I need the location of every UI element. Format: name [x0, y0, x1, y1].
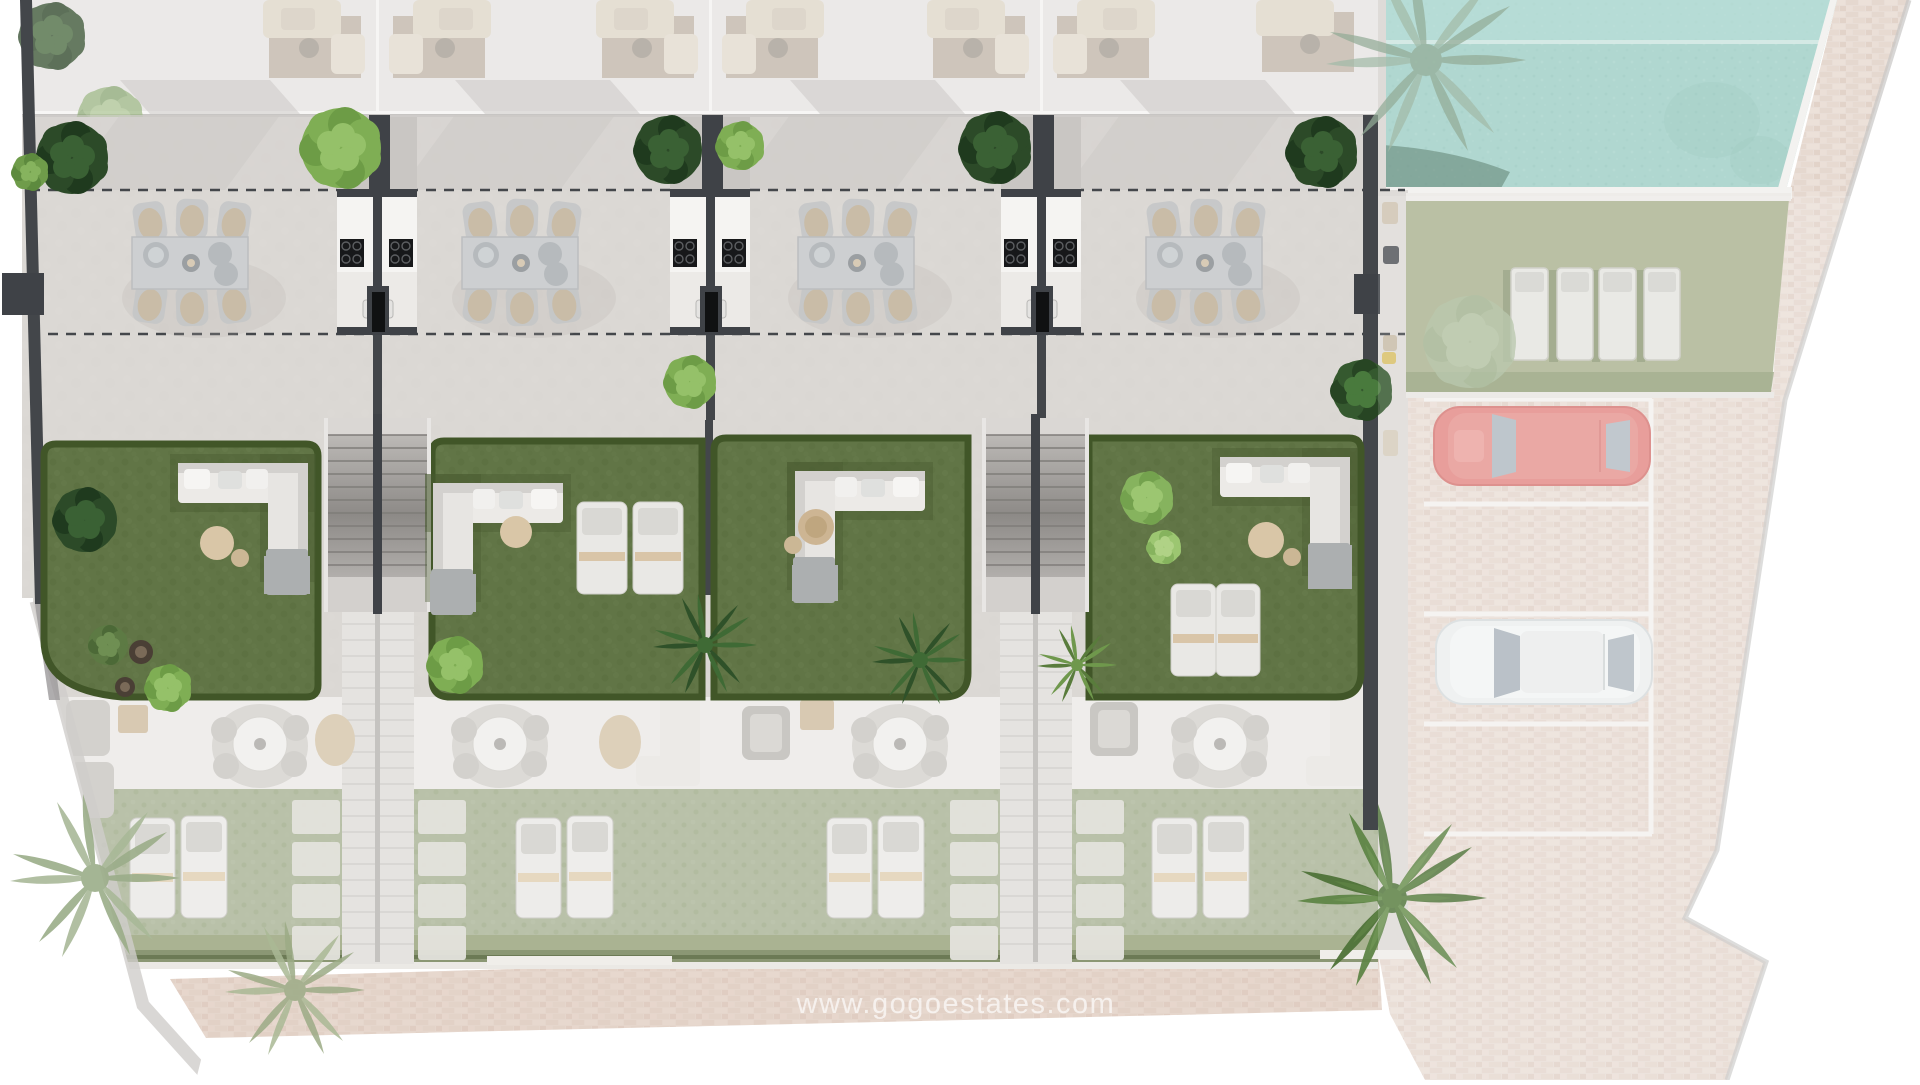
svg-text:www.gogoestates.com: www.gogoestates.com [796, 988, 1116, 1020]
